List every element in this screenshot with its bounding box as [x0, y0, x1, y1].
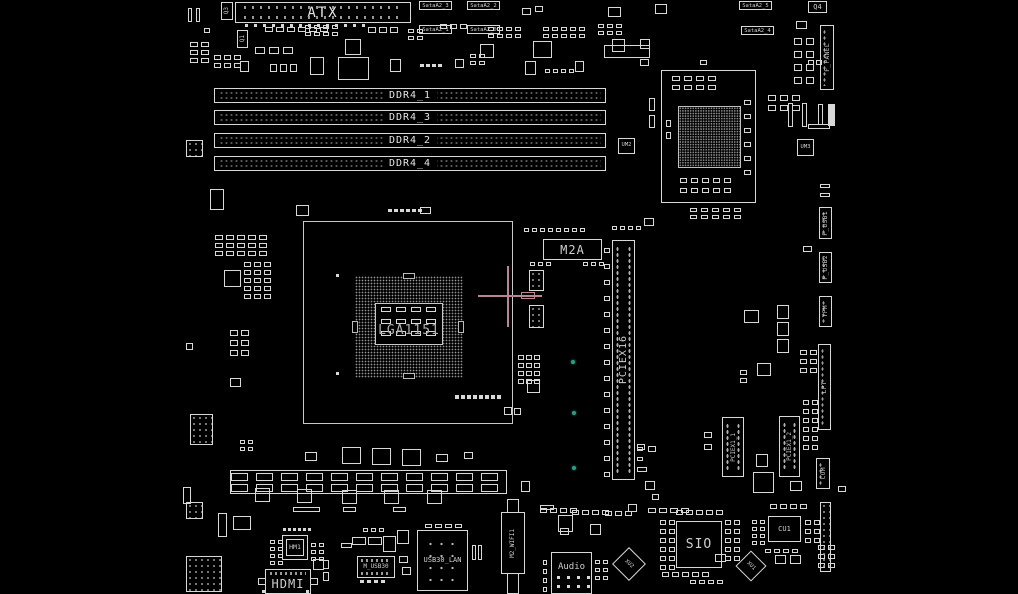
smd-pad — [440, 24, 447, 29]
smd-pad — [607, 24, 613, 28]
smd-pad — [691, 188, 698, 193]
smd-pad — [314, 32, 320, 36]
smd-pad — [371, 528, 376, 532]
smd-pad — [636, 226, 641, 230]
smd-component — [808, 60, 814, 65]
pcb-boardview-canvas[interactable]: ATX Q3 Q1 Q4 LGA1151 M2A PCIEX16 UM2 UM3… — [0, 0, 1018, 594]
smd-pad — [690, 215, 697, 219]
smd-pad — [353, 24, 356, 27]
smd-component — [397, 530, 409, 544]
smd-pad — [660, 529, 666, 534]
smd-pad — [557, 576, 560, 579]
smd-pad — [692, 572, 699, 577]
smd-pad — [417, 36, 423, 40]
smd-component — [297, 489, 312, 503]
m2-wifi-slot[interactable]: M2_WIFI1 — [501, 512, 525, 574]
m2-slot-m2a[interactable]: M2A — [543, 239, 602, 260]
smd-pad — [812, 418, 818, 423]
smd-pad — [628, 226, 633, 230]
smd-pad — [518, 371, 524, 376]
smd-pad — [620, 226, 625, 230]
smd-pad — [768, 95, 776, 101]
smd-pad — [485, 395, 489, 399]
smd-pad — [765, 549, 771, 553]
smd-pad — [794, 38, 802, 45]
smd-pad — [381, 473, 398, 481]
chip-um3[interactable]: UM3 — [797, 139, 814, 156]
smd-pad — [534, 363, 540, 368]
smd-pad — [270, 554, 275, 558]
smd-pad — [283, 47, 293, 54]
connector-m-usb30[interactable]: M_USB30 — [357, 556, 395, 578]
socket-notch-top — [403, 273, 415, 279]
smd-pad — [381, 307, 391, 312]
smd-pad — [264, 294, 271, 299]
smd-pad — [265, 27, 273, 32]
smd-pad — [760, 534, 765, 538]
smd-pad — [792, 549, 798, 553]
sata-net-label: SataA2_2 — [467, 1, 500, 10]
smd-pad — [744, 100, 751, 105]
header-tpm[interactable]: TPM — [819, 296, 832, 327]
smd-component — [808, 124, 830, 129]
smd-pad — [408, 36, 414, 40]
smd-pad — [792, 105, 800, 111]
smd-component — [777, 339, 789, 353]
smd-pad — [604, 328, 610, 333]
smd-component — [368, 537, 382, 545]
smd-pad — [604, 440, 610, 445]
smd-pad — [806, 38, 814, 45]
smd-pad — [723, 208, 730, 212]
smd-pad — [570, 34, 576, 38]
smd-pad — [244, 278, 251, 283]
smd-pad — [506, 27, 512, 31]
smd-pad — [696, 85, 704, 90]
ddr-slot-label: DDR4_3 — [383, 113, 437, 123]
smd-pad — [604, 360, 610, 365]
header-label: F_PANEL — [824, 43, 831, 72]
smd-pad — [637, 457, 643, 461]
smd-pad — [491, 395, 495, 399]
smd-pad — [669, 547, 675, 552]
smd-pad — [248, 251, 256, 256]
smd-pad — [201, 58, 209, 63]
smd-component — [802, 103, 807, 127]
smd-component — [740, 370, 747, 375]
smd-pad — [701, 215, 708, 219]
smd-pad — [412, 209, 416, 212]
smd-pad — [190, 58, 198, 63]
smd-component — [612, 39, 625, 52]
smd-pad — [706, 510, 713, 515]
smd-pad — [332, 32, 338, 36]
ddr-slot-ddr4_2[interactable]: DDR4_2 — [214, 133, 606, 148]
smd-pad — [278, 554, 283, 558]
smd-pad — [432, 64, 436, 67]
smd-pad — [190, 42, 198, 47]
smd-component — [522, 8, 531, 15]
component-q4[interactable]: Q4 — [808, 1, 827, 13]
smd-pad — [805, 538, 811, 543]
smd-pad — [379, 27, 387, 33]
smd-component — [757, 363, 771, 376]
smd-pad — [278, 561, 283, 565]
smd-pad — [744, 114, 751, 119]
smd-component — [383, 536, 396, 552]
m-usb30-label: M_USB30 — [363, 564, 388, 570]
smd-component — [652, 494, 659, 500]
smd-pad — [716, 510, 723, 515]
smd-pad — [455, 395, 459, 399]
smd-component — [504, 407, 512, 415]
cu1-label: CU1 — [778, 526, 791, 533]
smd-pad — [579, 27, 585, 31]
smd-component — [230, 378, 241, 387]
smd-pad — [690, 208, 697, 212]
smd-pad — [305, 32, 311, 36]
header-f_usb1[interactable]: F_USB1 — [819, 207, 832, 239]
smd-pad — [696, 510, 703, 515]
chip-cu1[interactable]: CU1 — [768, 516, 801, 542]
smd-pad — [524, 228, 529, 232]
smd-pad — [272, 24, 275, 27]
smd-component — [427, 490, 442, 504]
smd-pad — [196, 8, 200, 22]
q1-label: Q1 — [240, 35, 246, 42]
smd-pad — [725, 538, 731, 543]
smd-pad — [201, 50, 209, 55]
smd-pad — [553, 69, 558, 73]
smd-pad — [682, 572, 689, 577]
smd-pad — [648, 508, 656, 513]
xu2-label: XU2 — [623, 558, 634, 569]
hdmi-connector[interactable]: HDMI — [265, 569, 311, 594]
ddr-slot-ddr4_4[interactable]: DDR4_4 — [214, 156, 606, 171]
smd-pad — [188, 8, 192, 22]
ddr-slot-label: DDR4_1 — [383, 91, 437, 101]
chip-um2[interactable]: UM2 — [618, 138, 635, 154]
smd-pad — [248, 243, 256, 248]
pcie-x1-slot-1[interactable]: PCIEX1_1 — [722, 417, 744, 477]
q3-label: Q3 — [224, 7, 230, 14]
smd-component — [186, 556, 222, 592]
smd-pad — [810, 368, 817, 373]
smd-pad — [725, 547, 731, 552]
pciex1-2-label: PCIEX1_2 — [786, 432, 793, 461]
smd-pad — [269, 47, 279, 54]
smd-pad — [660, 520, 666, 525]
smd-pad — [287, 27, 295, 32]
smd-pad — [264, 286, 271, 291]
pciex1-1-label: PCIEX1_1 — [730, 433, 737, 462]
smd-pad — [411, 307, 421, 312]
smd-pad — [245, 24, 248, 27]
smd-pad — [408, 29, 414, 33]
smd-component — [342, 490, 357, 504]
smd-pad — [319, 550, 324, 554]
smd-pad — [241, 330, 249, 336]
smd-pad — [723, 215, 730, 219]
smd-component — [310, 57, 324, 75]
smd-pad — [306, 473, 323, 481]
hdmi-label: HDMI — [272, 578, 305, 590]
smd-component — [700, 60, 707, 65]
smd-component — [218, 513, 227, 537]
smd-pad — [420, 64, 424, 67]
smd-component — [183, 487, 191, 504]
smd-pad — [244, 270, 251, 275]
smd-component — [338, 57, 369, 80]
smd-pad — [570, 27, 576, 31]
smd-pad — [598, 24, 604, 28]
smd-component — [480, 44, 494, 58]
smd-pad — [768, 105, 776, 111]
smd-pad — [259, 235, 267, 240]
smd-component — [345, 39, 361, 55]
smd-pad — [752, 541, 757, 545]
chip-hm1[interactable]: HM1 — [282, 535, 308, 560]
smd-pad — [605, 511, 612, 516]
smd-pad — [240, 440, 245, 444]
smd-component — [715, 554, 726, 562]
smd-pad — [569, 69, 574, 73]
smd-component — [186, 343, 193, 350]
smd-pad — [744, 156, 751, 161]
smd-pad — [244, 286, 251, 291]
smd-pad — [603, 576, 608, 580]
sata-net-label: SataA2_0 — [467, 25, 500, 34]
smd-component — [323, 560, 329, 569]
smd-pad — [331, 473, 348, 481]
smd-pad — [616, 31, 622, 35]
smd-pad — [254, 24, 257, 27]
sata-net-label: SataA2_3 — [419, 1, 452, 10]
smd-pad — [290, 24, 293, 27]
smd-pad — [734, 556, 740, 561]
smd-pad — [760, 541, 765, 545]
smd-component — [820, 184, 830, 188]
smd-pad — [237, 235, 245, 240]
smd-pad — [696, 76, 704, 81]
header-com[interactable]: COM — [816, 458, 830, 489]
smd-pad — [595, 576, 600, 580]
smd-pad — [308, 24, 311, 27]
smd-pad — [470, 61, 476, 65]
smd-pad — [712, 208, 719, 212]
header-label: TPM — [822, 305, 829, 317]
smd-pad — [226, 251, 234, 256]
smd-pad — [803, 445, 809, 450]
smd-pad — [591, 262, 596, 266]
smd-pad — [577, 585, 580, 588]
smd-pad — [794, 64, 802, 71]
smd-pad — [538, 262, 543, 266]
smd-pad — [780, 95, 788, 101]
atx-power-connector[interactable]: ATX — [235, 2, 411, 23]
header-f_usb2[interactable]: F_USB2 — [819, 252, 832, 283]
smd-pad — [426, 64, 430, 67]
pciex16-label: PCIEX16 — [618, 335, 629, 384]
smd-pad — [497, 27, 503, 31]
smd-pad — [803, 409, 809, 414]
smd-pad — [587, 576, 590, 579]
smd-component — [535, 6, 543, 12]
smd-pad — [660, 538, 666, 543]
smd-component — [666, 132, 671, 139]
smd-pad — [534, 355, 540, 360]
smd-pad — [526, 355, 532, 360]
header-f_panel[interactable]: F_PANEL — [820, 25, 834, 90]
smd-pad — [604, 376, 610, 381]
smd-pad — [319, 543, 324, 547]
smd-pad — [224, 55, 231, 60]
smd-pad — [518, 379, 524, 384]
smd-component — [296, 205, 309, 216]
smd-pad — [752, 520, 757, 524]
component-q3[interactable]: Q3 — [221, 2, 233, 20]
m2-wifi-label: M2_WIFI1 — [510, 529, 516, 558]
smd-component — [186, 140, 203, 157]
smd-pad — [396, 307, 406, 312]
smd-pad — [515, 34, 521, 38]
smd-pad — [455, 524, 462, 528]
smd-pad — [431, 473, 448, 481]
smd-pad — [556, 228, 561, 232]
smd-pad — [497, 34, 503, 38]
smd-pad — [226, 235, 234, 240]
smd-pad — [311, 543, 316, 547]
smd-component — [777, 305, 789, 319]
component-xu2[interactable]: XU2 — [612, 547, 646, 581]
smd-pad — [672, 76, 680, 81]
smd-pad — [669, 529, 675, 534]
smd-pad — [598, 31, 604, 35]
smd-pad — [713, 178, 720, 183]
smd-component — [190, 414, 213, 445]
smd-component — [472, 545, 476, 560]
component-xu1[interactable]: XU1 — [735, 550, 766, 581]
smd-pad — [497, 395, 501, 399]
smd-component — [336, 274, 339, 277]
smd-pad — [215, 235, 223, 240]
smd-pad — [774, 549, 780, 553]
smd-pad — [461, 395, 465, 399]
smd-pad — [368, 27, 376, 33]
smd-component — [818, 104, 823, 125]
smd-pad — [760, 520, 765, 524]
smd-component — [372, 448, 391, 465]
smd-component — [280, 64, 287, 72]
smd-pad — [546, 262, 551, 266]
smd-component — [305, 452, 317, 461]
smd-component — [648, 446, 656, 452]
smd-pad — [552, 27, 558, 31]
smd-pad — [255, 47, 265, 54]
smd-pad — [270, 540, 275, 544]
smd-pad — [435, 524, 442, 528]
ddr-slot-ddr4_1[interactable]: DDR4_1 — [214, 88, 606, 103]
smd-component — [323, 572, 329, 581]
smd-pad — [684, 76, 692, 81]
sata-net-label: SataA2_5 — [739, 1, 772, 10]
smd-pad — [701, 208, 708, 212]
ddr-slot-ddr4_3[interactable]: DDR4_3 — [214, 110, 606, 125]
pcie-x16-slot[interactable]: PCIEX16 — [612, 240, 635, 480]
smd-component — [796, 21, 807, 29]
smd-pad — [734, 547, 740, 552]
smd-pad — [230, 340, 238, 346]
selection-highlight — [521, 292, 535, 299]
smd-pad — [240, 447, 245, 451]
smd-component — [186, 502, 203, 519]
smd-component — [527, 380, 540, 393]
smd-pad — [344, 24, 347, 27]
smd-pad — [780, 504, 787, 509]
smd-pad — [254, 262, 261, 267]
smd-pad — [254, 286, 261, 291]
smd-pad — [561, 69, 566, 73]
smd-component — [644, 218, 654, 226]
smd-pad — [708, 85, 716, 90]
smd-pad — [702, 572, 709, 577]
smd-pad — [572, 228, 577, 232]
smd-component — [224, 270, 241, 287]
smd-pad — [780, 105, 788, 111]
smd-pad — [708, 580, 714, 584]
smd-pad — [215, 243, 223, 248]
smd-component — [790, 555, 801, 564]
smd-pad — [248, 235, 256, 240]
chip-usb30-lan[interactable]: USB30_LAN — [417, 530, 468, 591]
smd-component — [649, 115, 655, 128]
component-q1[interactable]: Q1 — [237, 30, 248, 48]
smd-pad — [669, 520, 675, 525]
smd-pad — [734, 529, 740, 534]
smd-pad — [680, 178, 687, 183]
smd-pad — [603, 560, 608, 564]
smd-pad — [248, 447, 253, 451]
smd-component — [529, 305, 544, 328]
smd-pad — [293, 528, 296, 531]
smd-pad — [488, 34, 494, 38]
smd-pad — [577, 576, 580, 579]
header-lpt[interactable]: LPT — [818, 344, 831, 430]
smd-pad — [450, 24, 457, 29]
smd-pad — [604, 296, 610, 301]
smd-component — [775, 555, 786, 564]
smd-pad — [604, 456, 610, 461]
smd-pad — [587, 585, 590, 588]
smd-component — [341, 543, 352, 548]
smd-pad — [557, 585, 560, 588]
smd-pad — [806, 64, 814, 71]
smd-pad — [259, 243, 267, 248]
smd-component — [384, 490, 399, 504]
smd-pad — [669, 565, 675, 570]
smd-pad — [615, 511, 622, 516]
smd-pad — [552, 34, 558, 38]
smd-pad — [278, 540, 283, 544]
pcie-x1-slot-2[interactable]: PCIEX1_2 — [779, 416, 800, 477]
smd-pad — [283, 528, 286, 531]
header-label: LPT — [821, 381, 828, 393]
smd-pad — [712, 215, 719, 219]
smd-pad — [276, 27, 284, 32]
smd-pad — [299, 24, 302, 27]
smd-pad — [812, 445, 818, 450]
smd-pad — [595, 568, 600, 572]
